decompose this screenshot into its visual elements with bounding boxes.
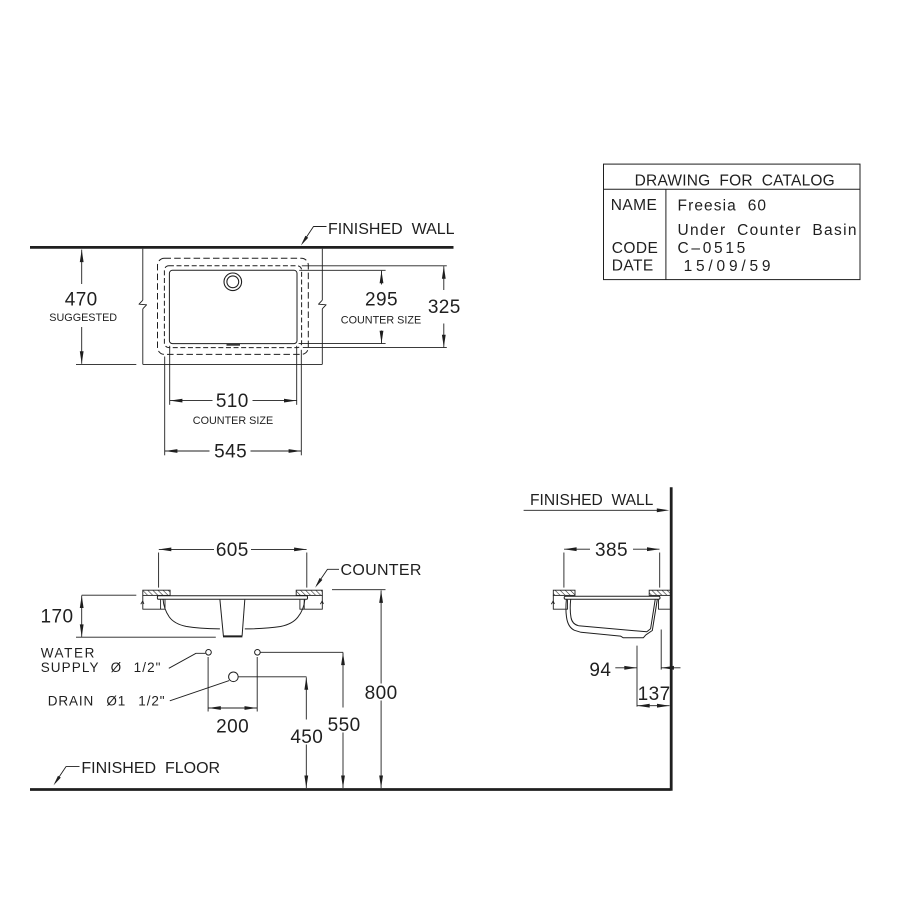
svg-text:CODE: CODE (612, 240, 658, 257)
svg-text:550: 550 (328, 715, 361, 736)
svg-text:FINISHED WALL: FINISHED WALL (328, 221, 455, 238)
svg-text:COUNTER: COUNTER (341, 562, 422, 579)
svg-text:DATE: DATE (612, 258, 654, 275)
svg-text:FINISHED FLOOR: FINISHED FLOOR (81, 760, 220, 777)
svg-text:295: 295 (365, 290, 398, 311)
svg-text:DRAWING FOR CATALOG: DRAWING FOR CATALOG (635, 172, 835, 189)
svg-text:Under Counter Basin: Under Counter Basin (678, 222, 858, 239)
svg-text:COUNTER SIZE: COUNTER SIZE (341, 314, 421, 326)
svg-text:605: 605 (216, 540, 249, 561)
svg-text:COUNTER SIZE: COUNTER SIZE (193, 415, 273, 427)
svg-text:WATER: WATER (41, 645, 96, 660)
svg-text:Freesia 60: Freesia 60 (678, 197, 768, 214)
svg-text:NAME: NAME (611, 197, 657, 214)
svg-text:94: 94 (589, 660, 611, 681)
svg-text:SUPPLY Ø 1/2": SUPPLY Ø 1/2" (41, 660, 162, 675)
svg-text:385: 385 (595, 540, 628, 561)
svg-text:470: 470 (65, 290, 98, 311)
svg-text:15/09/59: 15/09/59 (684, 258, 775, 275)
svg-text:FINISHED WALL: FINISHED WALL (530, 492, 654, 509)
svg-text:510: 510 (216, 391, 249, 412)
svg-text:DRAIN Ø1 1/2": DRAIN Ø1 1/2" (48, 694, 166, 709)
svg-text:C–0515: C–0515 (678, 240, 749, 257)
svg-text:325: 325 (428, 297, 461, 318)
svg-text:SUGGESTED: SUGGESTED (49, 312, 117, 324)
svg-text:200: 200 (216, 717, 249, 738)
svg-text:170: 170 (41, 606, 74, 627)
svg-text:137: 137 (638, 684, 671, 705)
svg-text:545: 545 (214, 442, 247, 463)
svg-text:450: 450 (290, 727, 323, 748)
svg-text:800: 800 (365, 683, 398, 704)
